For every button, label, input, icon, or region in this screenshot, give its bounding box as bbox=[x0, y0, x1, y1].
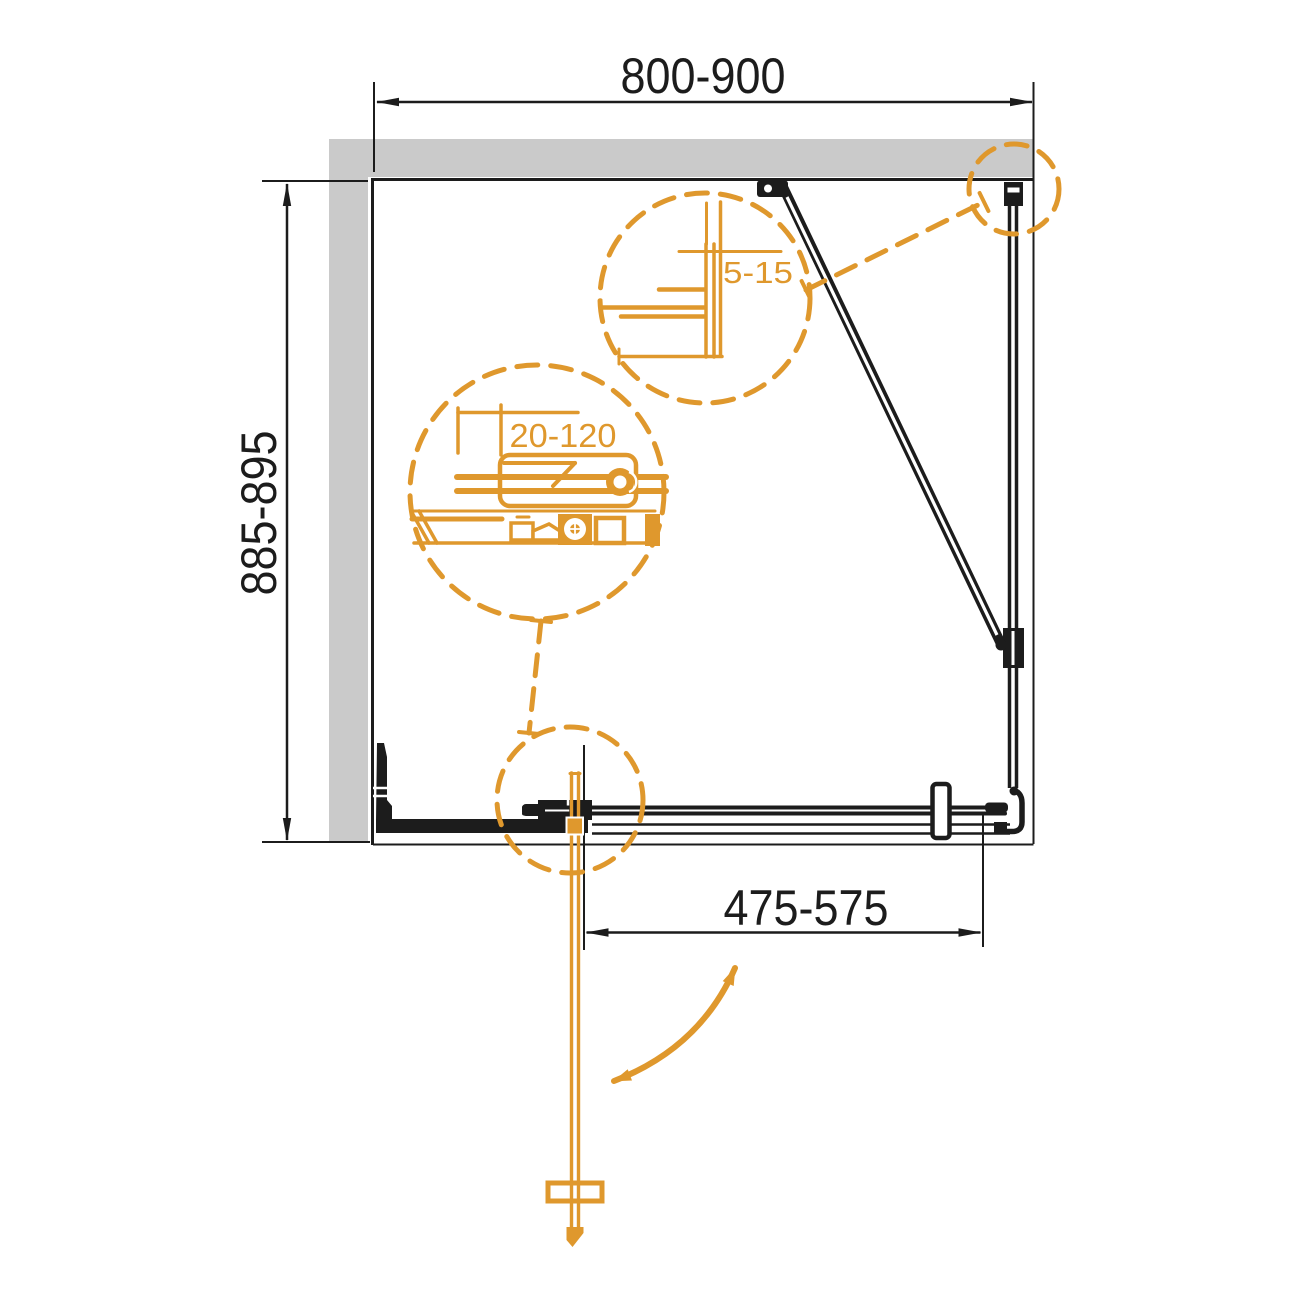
open-door-bottom-tip bbox=[567, 1227, 584, 1247]
dimension-bottom: 475-575 bbox=[584, 745, 983, 950]
shower-enclosure-diagram: 800-900 885-895 475-575 bbox=[0, 0, 1300, 1300]
dimension-top-label: 800-900 bbox=[621, 48, 786, 104]
end-cap bbox=[645, 514, 660, 546]
left-wall bbox=[329, 139, 368, 842]
door-swing-arc bbox=[614, 968, 735, 1081]
dimension-bottom-label: 475-575 bbox=[724, 880, 889, 936]
top-wall bbox=[329, 139, 1034, 177]
inline-panel-sill bbox=[376, 819, 588, 833]
slider-block bbox=[511, 523, 533, 540]
detail-wall-profile-label: 5-15 bbox=[723, 255, 793, 290]
roller-hub bbox=[614, 476, 627, 489]
dimension-left-label: 885-895 bbox=[231, 431, 287, 596]
open-door-handle bbox=[548, 1183, 602, 1201]
detail-adjustment-label: 20-120 bbox=[510, 417, 617, 454]
link-piece bbox=[533, 524, 560, 540]
detail-wall-profile: 5-15 bbox=[600, 193, 810, 403]
wall-profile-slit bbox=[1008, 188, 1020, 193]
support-bar-core bbox=[787, 197, 997, 635]
connector-adjustment-to-pivot bbox=[529, 621, 541, 733]
fixed-panel-right bbox=[1003, 182, 1024, 788]
bottom-track bbox=[373, 743, 1022, 834]
open-door-pivot-shoe bbox=[567, 818, 584, 835]
door-handle bbox=[933, 784, 950, 838]
detail-adjustment: 20-120 bbox=[410, 365, 666, 619]
connector-wallprofile-to-corner bbox=[806, 202, 984, 290]
connector-tick bbox=[980, 193, 989, 211]
wall-profile-cap bbox=[1004, 182, 1023, 206]
door-closed bbox=[524, 784, 1005, 838]
bracket-screw-hole bbox=[764, 185, 772, 193]
support-bar-tip bbox=[996, 640, 1007, 651]
guide-block bbox=[596, 518, 624, 543]
support-bar-wall-bracket bbox=[757, 181, 788, 198]
left-wall-jamb bbox=[376, 743, 392, 821]
swing-arrow bbox=[614, 968, 735, 1081]
enclosure-outer-frame bbox=[373, 82, 1034, 845]
diagram-canvas: 800-900 885-895 475-575 bbox=[0, 0, 1300, 1300]
